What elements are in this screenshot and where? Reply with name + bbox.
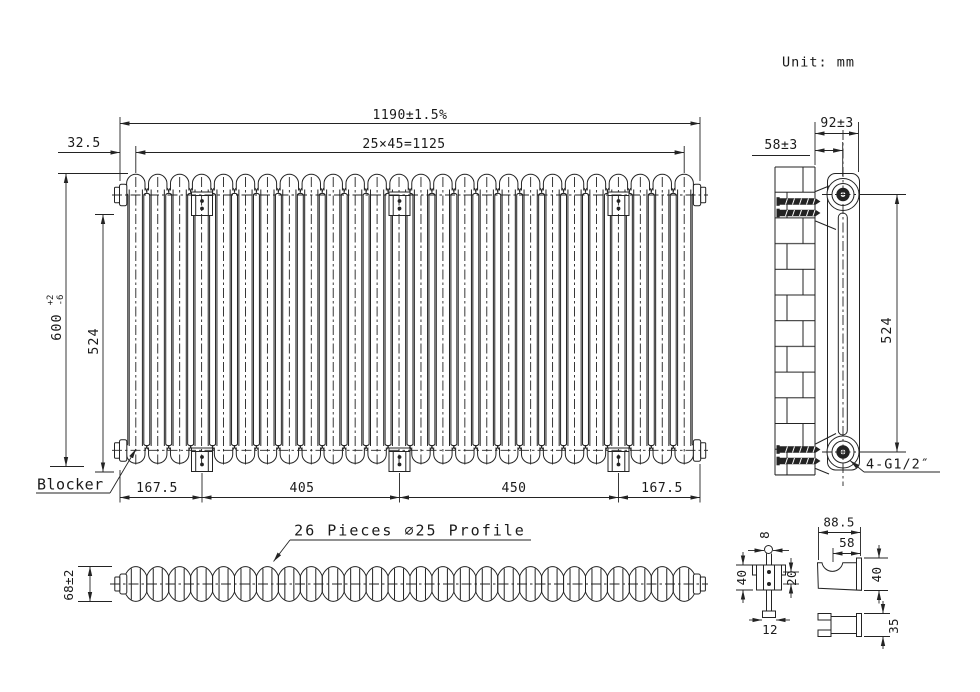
hook-shape <box>818 558 862 590</box>
connection-thread-label: 4-G1/2″ <box>866 457 930 473</box>
dim-clip-height: 35 <box>886 618 901 634</box>
dim-bottom-segment-2: 405 <box>290 481 315 496</box>
dim-connection-height: 524 <box>879 316 895 343</box>
dim-end-offset: 32.5 <box>67 136 100 151</box>
dim-tapping-height: 524 <box>86 327 102 354</box>
dim-hook-length: 88.5 <box>823 515 854 530</box>
profile-label: 26 Pieces ∅25 Profile <box>294 522 526 540</box>
bracket-front-detail: 8 40 20 12 <box>734 531 799 637</box>
dim-hole-spacing: 20 <box>784 570 799 586</box>
anchor-screw <box>777 457 821 466</box>
section-centerlines <box>136 177 684 467</box>
anchor-screw <box>777 197 821 206</box>
anchor-screw <box>777 209 821 218</box>
profile-view: 68±2 26 Pieces ∅25 Profile <box>61 522 708 602</box>
dim-section-pitch: 25×45=1125 <box>362 137 445 152</box>
radiator-column-side <box>828 174 860 471</box>
clip-body <box>831 617 857 634</box>
unit-note: Unit: mm <box>782 55 855 71</box>
anchor-screw <box>777 445 821 454</box>
dim-bottom-segment-1: 167.5 <box>136 481 178 496</box>
dim-overall-height-tol-upper: +2 <box>46 295 56 306</box>
bracket-side-detail: 88.5 58 40 <box>818 515 889 604</box>
wall-bracket <box>389 448 410 472</box>
dim-bracket-width: 12 <box>762 622 778 637</box>
dim-profile-height: 68±2 <box>61 569 76 600</box>
radiator-sections <box>122 174 698 463</box>
clip-plate <box>857 614 862 637</box>
dim-hook-height: 40 <box>869 567 884 583</box>
dim-bottom-segment-3: 450 <box>502 481 527 496</box>
drawing-sheet: 1190±1.5% 25×45=1125 32.5 600 +2 -6 524 … <box>0 0 980 692</box>
dim-overall-height-tol-lower: -6 <box>56 295 66 306</box>
radiator-technical-drawing: 1190±1.5% 25×45=1125 32.5 600 +2 -6 524 … <box>0 0 980 692</box>
dim-bottom-segment-4: 167.5 <box>641 481 683 496</box>
dim-wall-to-center: 58±3 <box>764 138 797 153</box>
dim-overall-height: 600 <box>49 313 65 340</box>
wall-bracket <box>389 192 410 216</box>
clip-detail: 35 <box>818 601 901 649</box>
dim-bracket-height: 40 <box>734 570 749 586</box>
dim-pin-diameter: 8 <box>757 531 772 539</box>
dim-hook-offset: 58 <box>839 535 855 550</box>
front-view <box>112 174 708 471</box>
dim-depth: 92±3 <box>820 116 853 131</box>
dim-overall-width: 1190±1.5% <box>373 108 448 123</box>
blocker-label: Blocker <box>37 476 104 494</box>
side-view <box>775 130 864 486</box>
